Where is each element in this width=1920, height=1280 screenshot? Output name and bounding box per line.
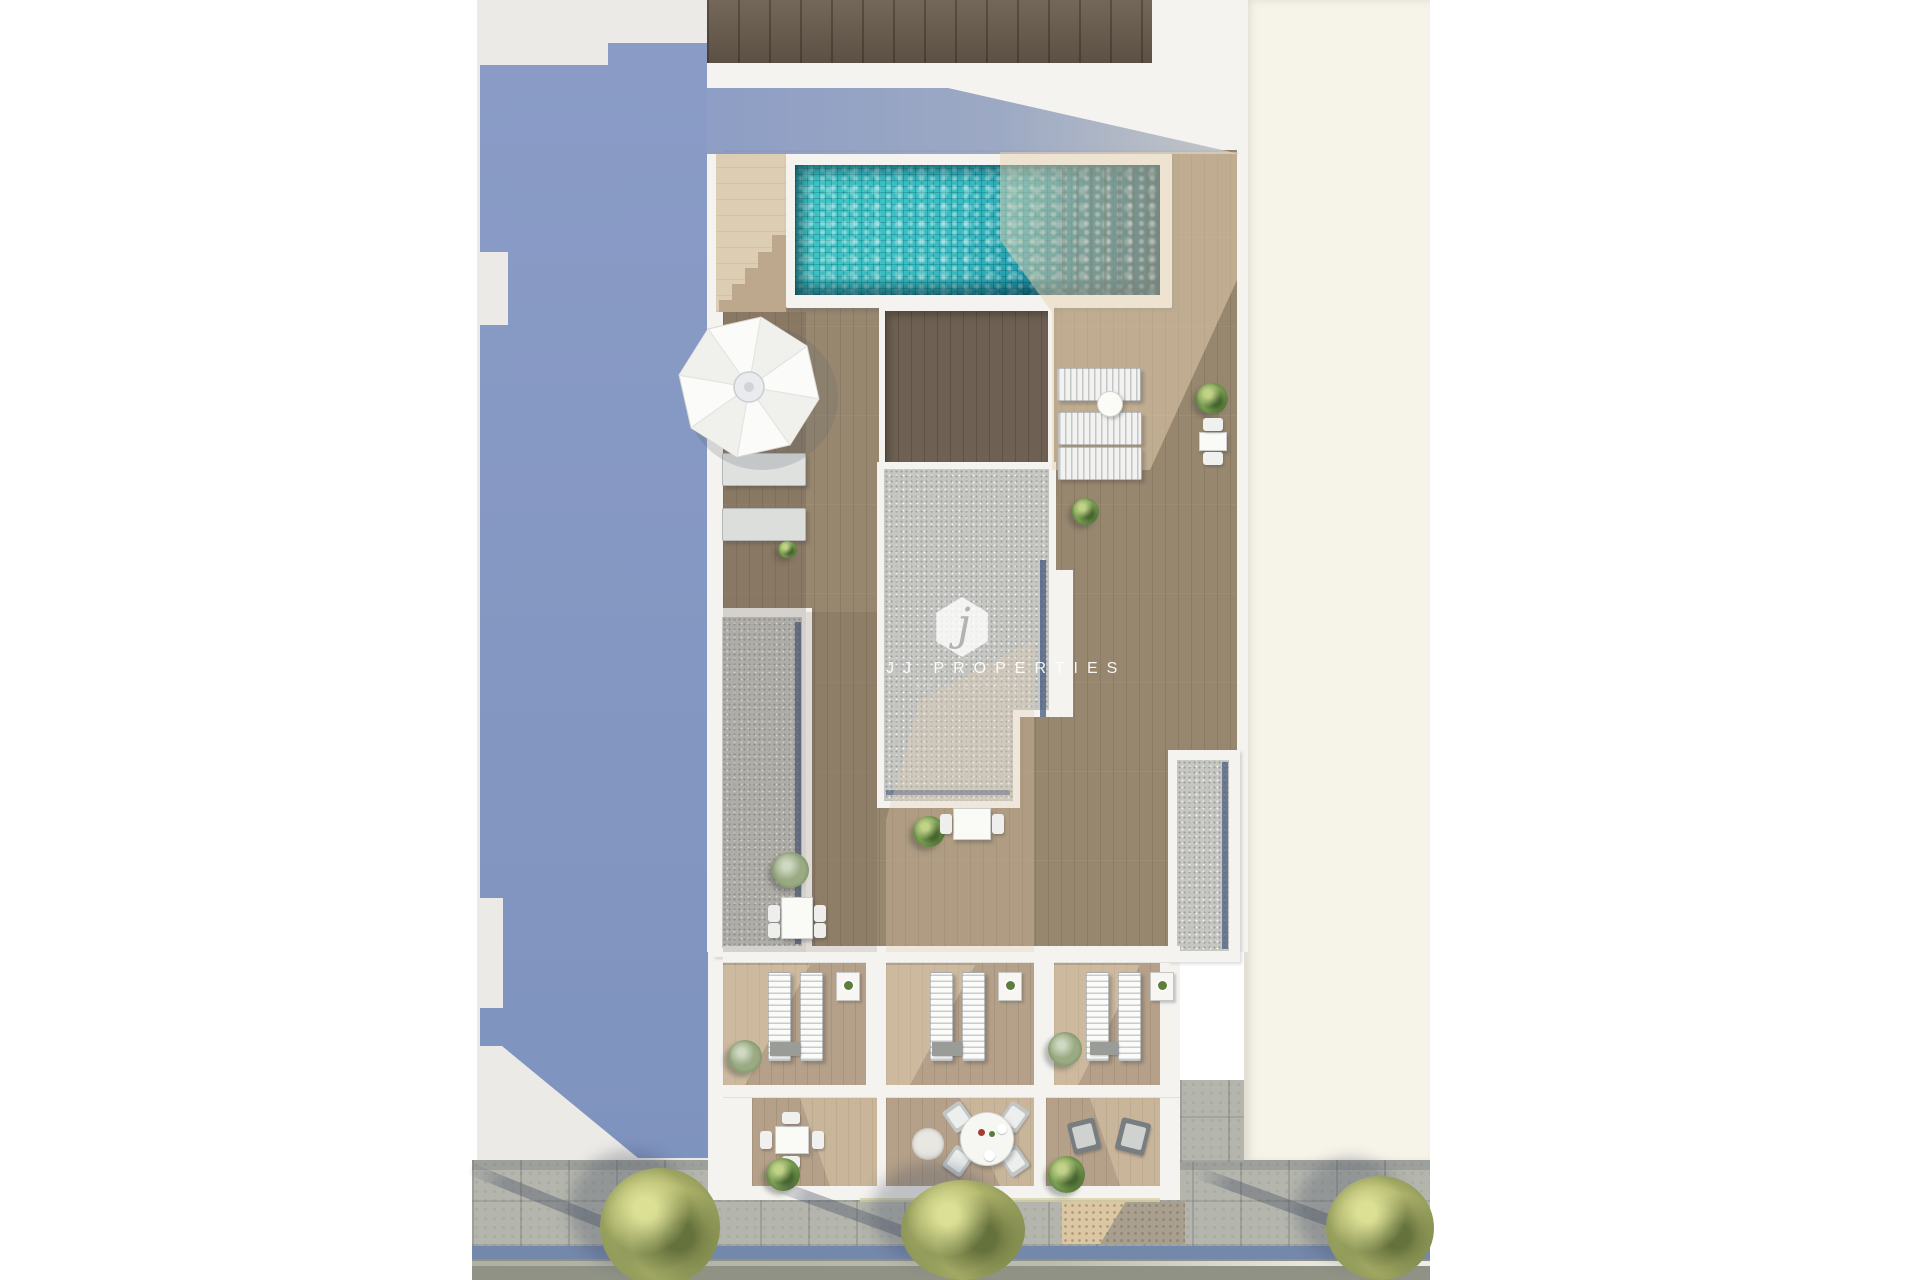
bottom-divider-2 <box>1034 1085 1046 1186</box>
shrub <box>1048 1032 1082 1066</box>
bistro-table-top-right <box>1199 432 1227 451</box>
shrub <box>772 852 809 888</box>
sun-lounger <box>800 972 823 1061</box>
right-planter-shadow-line <box>1222 762 1228 949</box>
dining-table-bottom-left <box>775 1126 809 1154</box>
pergola-roof-band <box>707 0 1152 63</box>
bottom-row-top-wall <box>723 1085 1180 1098</box>
recessed-terrace-floor <box>885 311 1048 486</box>
chair <box>1203 418 1223 431</box>
watermark-logo-tagline: REAL ESTATE <box>877 682 1057 691</box>
door-mat <box>770 1042 800 1056</box>
middle-divider-2 <box>1034 946 1054 1090</box>
chair <box>992 814 1004 834</box>
middle-divider-1 <box>866 946 886 1090</box>
potted-plant <box>778 541 797 558</box>
shrub <box>1072 498 1099 525</box>
chair <box>812 1131 824 1149</box>
side-table-with-plant <box>998 972 1022 1001</box>
aerial-render-canvas: j JJ PROPERTIES REAL ESTATE <box>0 0 1920 1280</box>
shrub <box>728 1040 762 1073</box>
chair <box>940 814 952 834</box>
street-tree <box>901 1180 1025 1280</box>
sun-lounger <box>962 972 985 1061</box>
sun-lounger <box>1118 972 1141 1061</box>
dining-table-left-deck <box>781 897 813 939</box>
pool-deep-end-stripes <box>1062 168 1158 292</box>
watermark-logo-name: JJ PROPERTIES <box>877 660 1057 678</box>
chair <box>814 905 826 922</box>
left-planter-shadow-line <box>795 622 801 944</box>
street-tree <box>1326 1176 1434 1280</box>
tableware-red <box>978 1129 985 1136</box>
stairs-area <box>716 152 786 312</box>
bottom-divider-1 <box>877 1085 886 1186</box>
side-table-with-plant <box>836 972 860 1001</box>
street-tree <box>600 1168 720 1280</box>
door-mat <box>1090 1042 1118 1055</box>
side-table-with-plant <box>1150 972 1174 1001</box>
chair <box>782 1112 800 1124</box>
tableware-plate <box>984 1150 995 1161</box>
sun-lounger <box>1058 447 1142 480</box>
sun-lounger <box>1058 412 1142 445</box>
chair <box>768 905 780 922</box>
core-gravel-shadow-line-right <box>1040 560 1046 717</box>
shrub <box>1196 383 1228 414</box>
chair <box>768 923 780 938</box>
middle-row-top-wall <box>723 946 1180 963</box>
chair <box>814 923 826 938</box>
tableware-plate <box>997 1124 1007 1134</box>
round-rug <box>912 1128 944 1160</box>
chair <box>760 1131 772 1149</box>
side-passage-paving <box>1180 1080 1244 1162</box>
sun-lounger <box>722 508 806 541</box>
neighbor-roof-left <box>477 0 723 1160</box>
round-side-table <box>1097 391 1123 417</box>
door-mat <box>932 1042 962 1056</box>
watermark-logo-monogram: j <box>957 603 971 647</box>
core-gravel-shadow-line-bottom <box>886 790 1010 795</box>
core-side-wall <box>1050 570 1073 717</box>
chair <box>1203 452 1223 465</box>
dining-table-mid-deck <box>953 808 991 840</box>
sun-lounger <box>722 453 806 486</box>
tableware-green <box>989 1131 995 1137</box>
neighbor-building-right <box>1244 0 1430 1162</box>
shrub <box>1048 1156 1085 1193</box>
